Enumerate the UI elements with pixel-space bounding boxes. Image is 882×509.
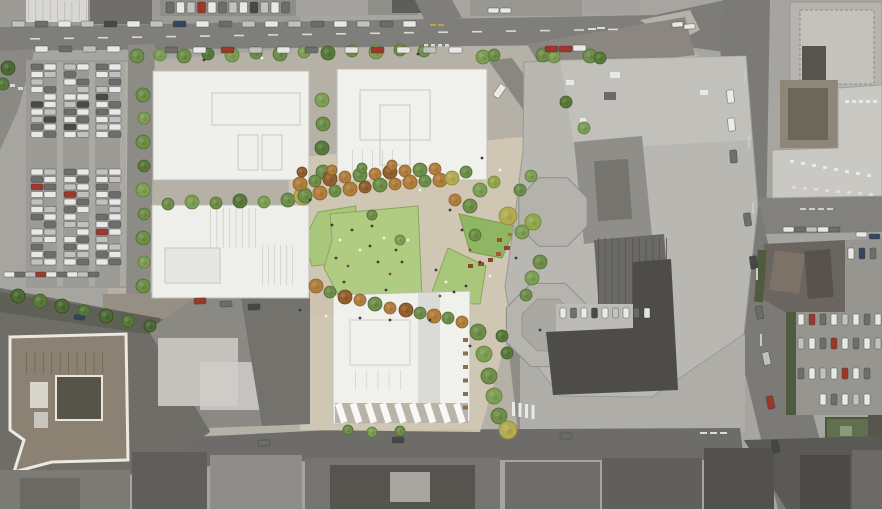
cross-street-parked bbox=[783, 227, 840, 232]
building-dark-roof bbox=[90, 0, 152, 24]
rooftop-unit bbox=[700, 90, 708, 95]
building-roof bbox=[296, 0, 368, 16]
lightwell-ring bbox=[56, 376, 102, 420]
shopping-centre-roof-light bbox=[560, 56, 752, 150]
rooftop-vent bbox=[604, 92, 616, 100]
parking-aisle bbox=[89, 62, 95, 286]
building-dark-roof bbox=[704, 448, 774, 509]
red-cars-south bbox=[545, 45, 586, 52]
roof-core bbox=[594, 159, 632, 221]
building-roof bbox=[505, 462, 600, 509]
roofplan-core bbox=[165, 248, 220, 283]
lawn bbox=[324, 206, 422, 306]
west-access-street bbox=[126, 44, 155, 310]
planting-bed bbox=[497, 238, 502, 242]
scene-layers bbox=[0, 0, 882, 509]
gable-roof bbox=[769, 250, 804, 294]
lot-south-row bbox=[4, 272, 99, 277]
colonnade-hatch bbox=[335, 402, 468, 423]
rooftop-unit bbox=[840, 426, 852, 436]
roof-light-patch bbox=[390, 472, 430, 502]
rooftop-parked-cars bbox=[560, 308, 650, 318]
roof-structure bbox=[30, 382, 48, 408]
building-dark-roof bbox=[132, 452, 207, 509]
building-dark-roof bbox=[800, 455, 850, 509]
junction-marks-south bbox=[700, 432, 727, 434]
planting-bed bbox=[496, 252, 501, 256]
east-lot-upper bbox=[848, 248, 876, 259]
building-roof bbox=[852, 450, 882, 509]
building-dark-roof bbox=[602, 458, 702, 509]
building-dark-roof bbox=[20, 478, 80, 509]
hedge bbox=[786, 312, 796, 415]
building-roof bbox=[470, 0, 582, 16]
planting-bed bbox=[468, 264, 473, 268]
parking-aisle bbox=[57, 62, 63, 286]
octagon-pavilion bbox=[519, 178, 587, 246]
rooftop-unit bbox=[566, 80, 574, 85]
planting-bed bbox=[488, 258, 493, 262]
building-dark-roof bbox=[788, 88, 828, 140]
building-roof bbox=[210, 455, 302, 509]
roof-well bbox=[802, 46, 826, 84]
aerial-masterplan-view bbox=[0, 0, 882, 509]
east-lot-row bbox=[798, 368, 870, 379]
rooftop-unit bbox=[610, 72, 620, 78]
planting-bed bbox=[504, 246, 510, 250]
building-roof bbox=[584, 0, 640, 14]
gable-roof bbox=[804, 249, 833, 299]
scene-svg bbox=[0, 0, 882, 509]
roof-white-section bbox=[200, 362, 260, 410]
roof-structure bbox=[34, 412, 48, 428]
